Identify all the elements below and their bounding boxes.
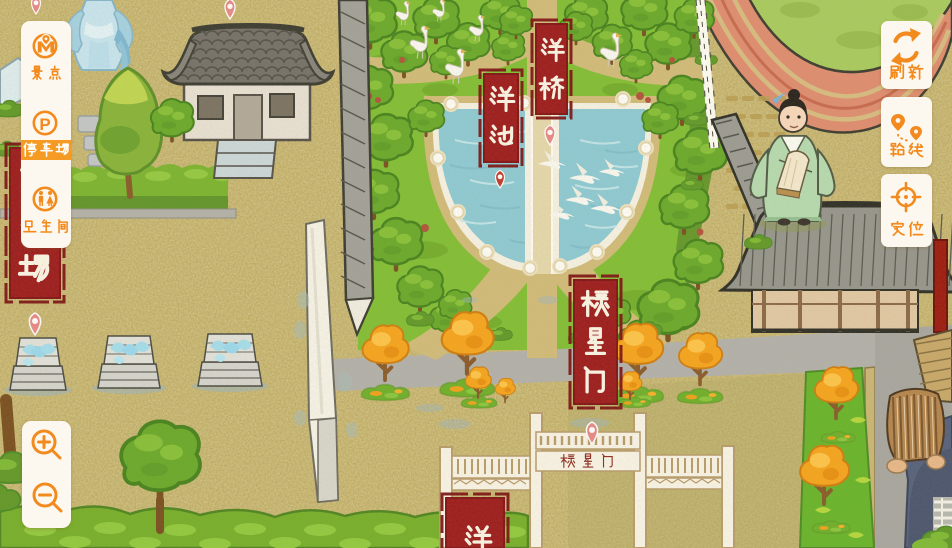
svg-text:P: P — [39, 115, 50, 134]
